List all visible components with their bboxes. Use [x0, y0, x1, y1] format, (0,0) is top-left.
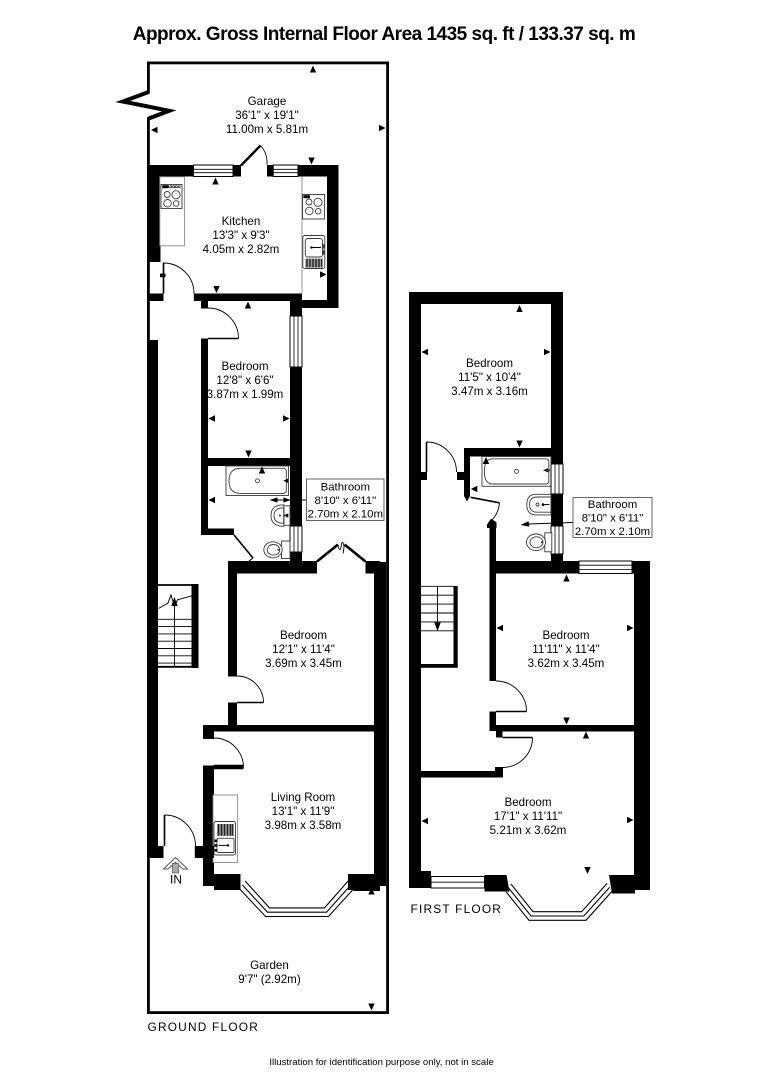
svg-text:11'5" x 10'4": 11'5" x 10'4": [458, 371, 521, 384]
svg-text:11.00m x 5.81m: 11.00m x 5.81m: [226, 123, 308, 136]
svg-text:Approx. Gross Internal Floor A: Approx. Gross Internal Floor Area 1435 s…: [133, 24, 636, 45]
svg-text:Bedroom: Bedroom: [542, 629, 589, 642]
svg-text:36'1" x 19'1": 36'1" x 19'1": [235, 109, 299, 122]
svg-text:3.98m x 3.58m: 3.98m x 3.58m: [265, 819, 342, 832]
svg-text:3.69m x 3.45m: 3.69m x 3.45m: [265, 657, 342, 670]
svg-text:GROUND FLOOR: GROUND FLOOR: [148, 1020, 260, 1034]
svg-text:3.87m x 1.99m: 3.87m x 1.99m: [207, 388, 284, 401]
svg-text:2.70m x 2.10m: 2.70m x 2.10m: [308, 509, 383, 521]
svg-text:Bedroom: Bedroom: [280, 629, 327, 642]
svg-text:Bathroom: Bathroom: [321, 482, 370, 494]
svg-text:IN: IN: [170, 873, 182, 887]
svg-text:3.47m x 3.16m: 3.47m x 3.16m: [451, 385, 528, 398]
svg-text:11'11" x 11'4": 11'11" x 11'4": [532, 643, 599, 656]
svg-text:Illustration for identificatio: Illustration for identification purpose …: [269, 1057, 493, 1068]
svg-text:9'7" (2.92m): 9'7" (2.92m): [238, 973, 301, 986]
svg-text:5.21m x 3.62m: 5.21m x 3.62m: [490, 824, 567, 837]
svg-text:12'1" x 11'4": 12'1" x 11'4": [272, 643, 335, 656]
svg-text:Kitchen: Kitchen: [222, 215, 261, 228]
svg-text:Bathroom: Bathroom: [588, 499, 637, 511]
svg-text:13'1" x 11'9": 13'1" x 11'9": [272, 805, 335, 818]
svg-text:17'1" x 11'11": 17'1" x 11'11": [494, 810, 562, 823]
svg-text:8'10" x 6'11": 8'10" x 6'11": [314, 495, 376, 507]
svg-text:3.62m x 3.45m: 3.62m x 3.45m: [528, 657, 605, 670]
svg-text:Living Room: Living Room: [271, 791, 335, 804]
svg-text:12'8" x 6'6": 12'8" x 6'6": [216, 374, 273, 387]
svg-text:2.70m x 2.10m: 2.70m x 2.10m: [575, 526, 650, 538]
svg-text:Garden: Garden: [250, 959, 289, 972]
svg-text:FIRST FLOOR: FIRST FLOOR: [411, 902, 503, 916]
svg-text:13'3" x 9'3": 13'3" x 9'3": [212, 229, 269, 242]
svg-text:8'10" x 6'11": 8'10" x 6'11": [582, 513, 644, 525]
svg-text:Bedroom: Bedroom: [221, 360, 268, 373]
svg-text:Bedroom: Bedroom: [504, 796, 551, 809]
svg-text:Garage: Garage: [248, 95, 287, 108]
svg-text:4.05m x 2.82m: 4.05m x 2.82m: [203, 243, 280, 256]
svg-text:Bedroom: Bedroom: [466, 357, 513, 370]
